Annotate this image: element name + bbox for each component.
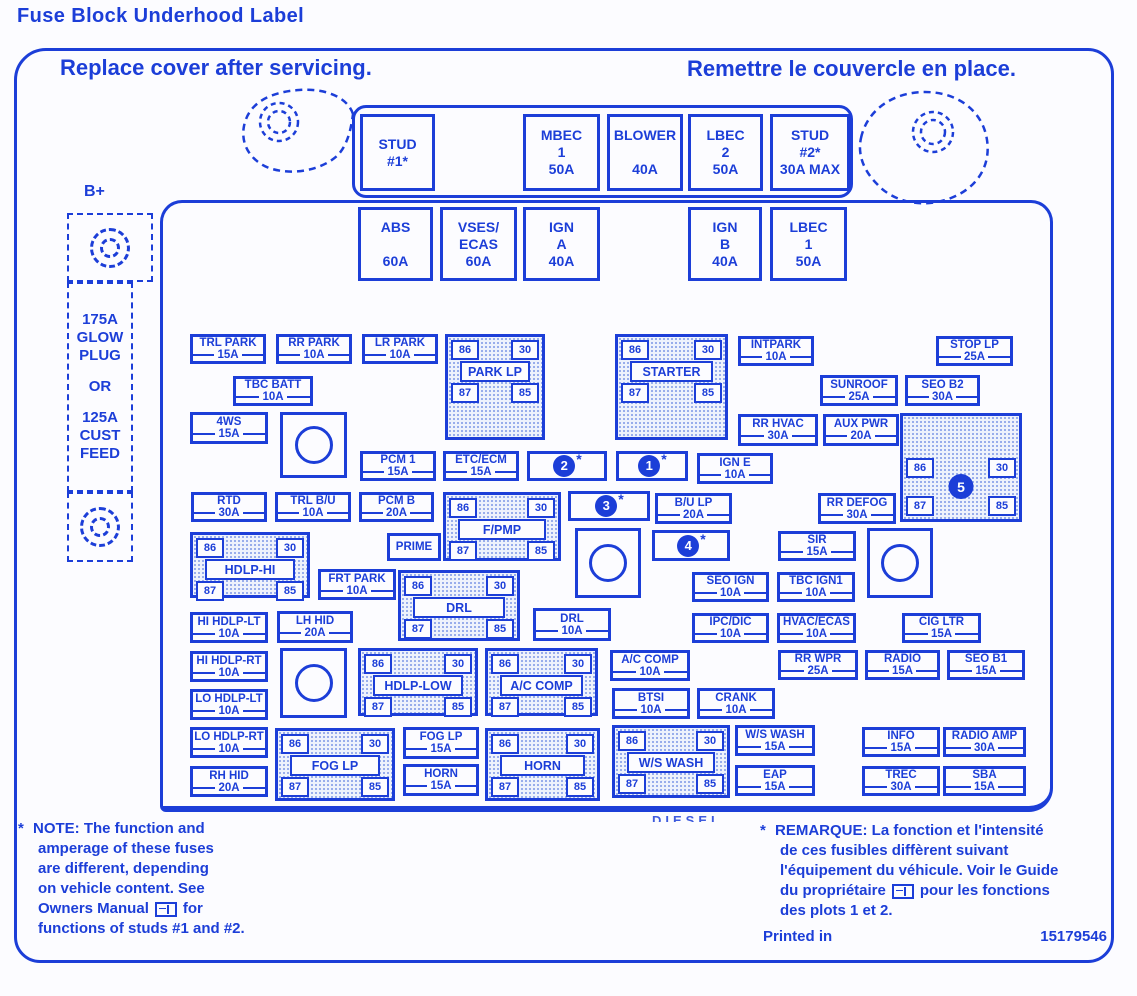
fuse-lo-hdlp-lt: LO HDLP-LT10A	[190, 689, 268, 720]
fuse-hvac-ecas: HVAC/ECAS10A	[777, 613, 856, 643]
fuse-amperage: 10A	[215, 743, 242, 755]
b-plus-stud-top	[67, 213, 153, 282]
fuse-name: RR DEFOG	[825, 497, 890, 509]
fuse-amperage: 10A	[717, 587, 744, 599]
fuse-amperage: 15A	[427, 743, 454, 755]
relay-socket	[280, 648, 347, 718]
fuse-trl-b-u: TRL B/U10A	[275, 492, 351, 522]
fuse-amperage: 15A	[761, 781, 788, 793]
fuse-amp-row: 15A	[905, 628, 978, 640]
fuse-name: EAP	[761, 769, 789, 781]
maxi-fuse-lbec-2: LBEC250A	[688, 114, 763, 191]
note-line: de ces fusibles diffèrent suivant	[760, 841, 1110, 861]
fuse-amp-row: 10A	[193, 705, 265, 717]
fuse-amp-row: 15A	[406, 780, 476, 792]
fuse-name: TREC	[883, 769, 918, 781]
bolt-hole-icon	[921, 120, 945, 144]
fuse-rtd: RTD30A	[191, 492, 267, 522]
relay-fog-lp: 86308785FOG LP	[275, 728, 395, 801]
fuse-pcm-b: PCM B20A	[359, 492, 434, 522]
relay-horn: 86308785HORN	[485, 728, 600, 801]
fuse-name: SEO B2	[919, 379, 965, 391]
relay-terminal-86: 86	[196, 538, 224, 558]
fuse-name: INTPARK	[749, 339, 803, 351]
fuse-amperage: 10A	[722, 704, 749, 716]
relay-terminal-85: 85	[486, 619, 514, 639]
fuse-number-badge: 3	[595, 495, 617, 517]
asterisk: *	[700, 533, 705, 545]
note-text: NOTE: The function and	[33, 820, 205, 837]
relay-terminal-85: 85	[988, 496, 1016, 516]
bolt-icon	[90, 228, 130, 268]
bolt-hole-icon	[913, 112, 953, 152]
relay-terminal-30: 30	[988, 458, 1016, 478]
fuse-amperage: 10A	[215, 667, 242, 679]
fuse-amperage: 15A	[384, 466, 411, 478]
note-line: functions of studs #1 and #2.	[18, 919, 268, 939]
fuse-tbc-batt: TBC BATT10A	[233, 376, 313, 406]
fuse-2-star: 2*	[527, 451, 607, 481]
relay-terminal-87: 87	[449, 541, 477, 561]
note-line: amperage of these fuses	[18, 839, 268, 859]
maxi-fuse-line: 50A	[713, 161, 739, 178]
fuse-amp-row: 10A	[236, 391, 310, 403]
relay-w-s-wash: 86308785W/S WASH	[612, 725, 730, 798]
fuse-amp-row: 30A	[741, 430, 815, 442]
fuse-amp-row: 10A	[695, 628, 766, 640]
maxi-fuse-line: 40A	[632, 161, 658, 178]
fuse-name: RH HID	[207, 770, 251, 782]
fuse-amp-row: 10A	[700, 469, 770, 481]
fuse-name: 4WS	[215, 416, 244, 428]
relay-terminal-30: 30	[696, 731, 724, 751]
relay-name: HDLP-LOW	[373, 675, 463, 696]
fuse-name: RR PARK	[286, 337, 342, 349]
fuse-amperage: 15A	[889, 665, 916, 677]
note-text: REMARQUE: La fonction et l'intensité	[775, 822, 1044, 839]
bolt-hole-icon	[268, 111, 290, 133]
fuse-name: SUNROOF	[828, 379, 890, 391]
fuse-amperage: 20A	[383, 507, 410, 519]
fuse-name: PCM B	[376, 495, 417, 507]
note-line: des plots 1 et 2.	[760, 901, 1110, 921]
fuse-amp-row: 15A	[950, 665, 1022, 677]
maxi-fuse-stud-2: STUD#2*30A MAX	[770, 114, 850, 191]
fuse-pcm-1: PCM 115A	[360, 451, 436, 481]
relay-name: HDLP-HI	[205, 559, 295, 580]
fuse-seo-ign: SEO IGN10A	[692, 572, 769, 602]
maxi-fuse-mbec-1: MBEC150A	[523, 114, 600, 191]
maxi-fuse-line: IGN	[549, 219, 574, 236]
fuse-name: B/U LP	[673, 497, 715, 509]
relay-terminal-87: 87	[281, 777, 309, 797]
maxi-fuse-ign-a: IGNA40A	[523, 207, 600, 281]
fuse-eap: EAP15A	[735, 765, 815, 796]
fuse-amp-row: 30A	[908, 391, 977, 403]
replace-cover-text-fr: Remettre le couvercle en place.	[687, 56, 1016, 82]
fuse-amp-row: 15A	[446, 466, 516, 478]
maxi-fuse-line: 2	[722, 144, 730, 161]
relay-socket	[280, 412, 347, 478]
fuse-amperage: 10A	[299, 507, 326, 519]
maxi-fuse-line: IGN	[713, 219, 738, 236]
fuse-block-underhood-label-page: Fuse Block Underhood Label Replace cover…	[0, 0, 1137, 996]
fuse-name: SBA	[970, 769, 998, 781]
fuse-name: SEO B1	[963, 653, 1009, 665]
maxi-fuse-line: VSES/	[458, 219, 499, 236]
fuse-amperage: 10A	[637, 704, 664, 716]
fuse-amperage: 15A	[215, 428, 242, 440]
relay-terminal-87: 87	[364, 697, 392, 717]
note-line: l'équipement du véhicule. Voir le Guide	[760, 861, 1110, 881]
relay-terminal-30: 30	[511, 340, 539, 360]
maxi-fuse-line: 1	[558, 144, 566, 161]
printed-in-text: Printed in	[763, 928, 832, 945]
fuse-amp-row: 15A	[363, 466, 433, 478]
relay-socket	[867, 528, 933, 598]
relay-name: FOG LP	[290, 755, 380, 776]
fuse-amperage: 25A	[845, 391, 872, 403]
relay-terminal-30: 30	[527, 498, 555, 518]
fuse-rh-hid: RH HID20A	[190, 766, 268, 797]
fuse-amp-row: 30A	[821, 509, 893, 521]
glow-line: PLUG	[79, 347, 121, 365]
fuse-name: TBC BATT	[243, 379, 304, 391]
note-text: pour les fonctions	[920, 881, 1050, 901]
fuse-w-s-wash: W/S WASH15A	[735, 725, 815, 756]
relay-terminal-86: 86	[449, 498, 477, 518]
fuse-amperage: 20A	[680, 509, 707, 521]
fuse-name: IGN E	[717, 457, 752, 469]
glow-line: CUST	[80, 427, 121, 445]
fuse-radio-amp: RADIO AMP30A	[943, 727, 1026, 757]
fuse-lo-hdlp-rt: LO HDLP-RT10A	[190, 727, 268, 758]
maxi-fuse-vses-ecas: VSES/ECAS60A	[440, 207, 517, 281]
fuse-amp-row: 25A	[781, 665, 855, 677]
fuse-amperage: 15A	[803, 546, 830, 558]
relay-name: F/PMP	[458, 519, 546, 540]
fuse-hi-hdlp-rt: HI HDLP-RT10A	[190, 651, 268, 682]
socket-circle-icon	[589, 544, 627, 582]
fuse-amp-row: 30A	[194, 507, 264, 519]
fuse-amperage: 15A	[928, 628, 955, 640]
glow-line: FEED	[80, 445, 120, 463]
relay-5: 863087855	[900, 413, 1022, 522]
fuse-seo-b1: SEO B115A	[947, 650, 1025, 680]
fuse-name: RR HVAC	[750, 418, 806, 430]
fuse-name: CIG LTR	[917, 616, 966, 628]
fuse-1-star: 1*	[616, 451, 688, 481]
note-line: du propriétaire pour les fonctions	[760, 881, 1110, 901]
relay-terminal-87: 87	[491, 777, 519, 797]
relay-terminal-87: 87	[621, 383, 649, 403]
note-line: *NOTE: The function and	[18, 819, 268, 839]
relay-terminal-30: 30	[444, 654, 472, 674]
fuse-amperage: 15A	[972, 665, 999, 677]
fuse-number-badge: 2	[553, 455, 575, 477]
fuse-rr-wpr: RR WPR25A	[778, 650, 858, 680]
fuse-amp-row: 20A	[193, 782, 265, 794]
fuse-name: TRL B/U	[288, 495, 337, 507]
fuse-amperage: 10A	[636, 666, 663, 678]
fuse-radio: RADIO15A	[865, 650, 940, 680]
fuse-amperage: 10A	[558, 625, 585, 637]
note-english: *NOTE: The function and amperage of thes…	[18, 819, 268, 939]
fuse-sba: SBA15A	[943, 766, 1026, 796]
relay-terminal-85: 85	[444, 697, 472, 717]
fuse-name: W/S WASH	[743, 729, 806, 741]
relay-terminal-85: 85	[511, 383, 539, 403]
asterisk: *	[618, 493, 623, 505]
relay-terminal-86: 86	[451, 340, 479, 360]
fuse-amperage: 15A	[467, 466, 494, 478]
maxi-fuse-line: #2*	[799, 144, 820, 161]
fuse-amp-row: 15A	[946, 781, 1023, 793]
relay-drl: 86308785DRL	[398, 570, 520, 641]
fuse-intpark: INTPARK10A	[738, 336, 814, 366]
fuse-tbc-ign1: TBC IGN110A	[777, 572, 855, 602]
fuse-amperage: 10A	[259, 391, 286, 403]
fuse-fog-lp: FOG LP15A	[403, 727, 479, 759]
replace-cover-text-en: Replace cover after servicing.	[60, 55, 372, 81]
maxi-fuse-line: LBEC	[789, 219, 827, 236]
maxi-fuse-blower: BLOWER40A	[607, 114, 683, 191]
fuse-amperage: 10A	[721, 469, 748, 481]
fuse-seo-b2: SEO B230A	[905, 375, 980, 406]
fuse-name: FOG LP	[418, 731, 465, 743]
fuse-amperage: 10A	[386, 349, 413, 361]
maxi-fuse-line: MBEC	[541, 127, 582, 144]
relay-terminal-85: 85	[696, 774, 724, 794]
relay-terminal-30: 30	[276, 538, 304, 558]
maxi-fuse-line: 30A MAX	[780, 161, 840, 178]
relay-park-lp: 86308785PARK LP	[445, 334, 545, 440]
socket-circle-icon	[295, 664, 333, 702]
fuse-name: AUX PWR	[832, 418, 890, 430]
fuse-sunroof: SUNROOF25A	[820, 375, 898, 406]
fuse-name: LH HID	[294, 615, 336, 627]
fuse-info: INFO15A	[862, 727, 940, 757]
relay-terminal-85: 85	[564, 697, 592, 717]
fuse-amp-row: 20A	[362, 507, 431, 519]
fuse-amperage: 30A	[215, 507, 242, 519]
fuse-name: ETC/ECM	[453, 454, 509, 466]
fuse-sir: SIR15A	[778, 531, 856, 561]
fuse-amp-row: 15A	[738, 781, 812, 793]
fuse-name: BTSI	[636, 692, 666, 704]
relay-terminal-87: 87	[491, 697, 519, 717]
fuse-stop-lp: STOP LP25A	[936, 336, 1013, 366]
fuse-amp-row: 25A	[939, 351, 1010, 363]
maxi-fuse-line: 50A	[549, 161, 575, 178]
fuse-amp-row: 10A	[193, 628, 265, 640]
socket-circle-icon	[881, 544, 919, 582]
relay-terminal-86: 86	[491, 734, 519, 754]
relay-a-c-comp: 86308785A/C COMP	[485, 648, 598, 716]
fuse-name: TRL PARK	[197, 337, 258, 349]
fuse-name: RTD	[215, 495, 243, 507]
note-text: Owners Manual	[38, 899, 149, 919]
fuse-amp-row: 10A	[193, 667, 265, 679]
fuse-ipc-dic: IPC/DIC10A	[692, 613, 769, 643]
fuse-name: INFO	[885, 730, 916, 742]
fuse-name: HORN	[422, 768, 460, 780]
partial-diesel-text: DIESEL	[652, 814, 772, 822]
fuse-crank: CRANK10A	[697, 688, 775, 719]
page-title: Fuse Block Underhood Label	[17, 5, 304, 28]
fuse-btsi: BTSI10A	[612, 688, 690, 719]
fuse-amp-row: 10A	[193, 743, 265, 755]
guide-book-icon	[892, 884, 914, 899]
relay-name: HORN	[500, 755, 585, 776]
relay-terminal-30: 30	[486, 576, 514, 596]
glow-line: 125A	[82, 409, 118, 427]
relay-terminal-30: 30	[564, 654, 592, 674]
glow-line: OR	[89, 378, 112, 396]
fuse-rr-defog: RR DEFOG30A	[818, 493, 896, 524]
fuse-amperage: 15A	[971, 781, 998, 793]
fuse-aux-pwr: AUX PWR20A	[823, 414, 899, 446]
fuse-hi-hdlp-lt: HI HDLP-LT10A	[190, 612, 268, 643]
bolt-icon	[80, 507, 120, 547]
fuse-amp-row: 25A	[823, 391, 895, 403]
socket-circle-icon	[295, 426, 333, 464]
fuse-etc-ecm: ETC/ECM15A	[443, 451, 519, 481]
fuse-amp-row: 15A	[868, 665, 937, 677]
fuse-name: SIR	[805, 534, 828, 546]
fuse-name: PCM 1	[378, 454, 417, 466]
fuse-amperage: 10A	[215, 628, 242, 640]
relay-terminal-86: 86	[618, 731, 646, 751]
fuse-ign-e: IGN E10A	[697, 453, 773, 484]
maxi-fuse-line: 60A	[383, 253, 409, 270]
fuse-name: A/C COMP	[619, 654, 681, 666]
fuse-amp-row: 20A	[658, 509, 729, 521]
owners-manual-book-icon	[155, 902, 177, 917]
fuse-amp-row: 30A	[865, 781, 937, 793]
fuse-name: LR PARK	[373, 337, 427, 349]
asterisk: *	[661, 453, 666, 465]
relay-terminal-86: 86	[906, 458, 934, 478]
fuse-amp-row: 30A	[946, 742, 1023, 754]
fuse-name: SEO IGN	[705, 575, 757, 587]
relay-terminal-86: 86	[281, 734, 309, 754]
fuse-amp-row: 15A	[193, 349, 263, 361]
asterisk: *	[576, 453, 581, 465]
maxi-fuse-line: 40A	[712, 253, 738, 270]
relay-number-badge: 5	[949, 474, 974, 499]
partial-label: DIESEL	[652, 814, 723, 822]
fuse-drl: DRL10A	[533, 608, 611, 641]
fuse-amperage: 30A	[887, 781, 914, 793]
fuse-amp-row: 15A	[865, 742, 937, 754]
fuse-4-star: 4*	[652, 530, 730, 561]
fuse-amp-row: 10A	[321, 585, 393, 597]
maxi-fuse-line: 40A	[549, 253, 575, 270]
fuse-amp-row: 10A	[780, 587, 852, 599]
relay-terminal-30: 30	[694, 340, 722, 360]
fuse-number-badge: 1	[638, 455, 660, 477]
fuse-amp-row: 15A	[193, 428, 265, 440]
relay-terminal-85: 85	[361, 777, 389, 797]
fuse-amperage: 10A	[762, 351, 789, 363]
relay-terminal-87: 87	[404, 619, 432, 639]
note-french: *REMARQUE: La fonction et l'intensité de…	[760, 821, 1110, 921]
fuse-amp-row: 20A	[280, 627, 350, 639]
fuse-lh-hid: LH HID20A	[277, 611, 353, 643]
relay-terminal-85: 85	[527, 541, 555, 561]
fuse-amperage: 15A	[761, 741, 788, 753]
fuse-amperage: 10A	[343, 585, 370, 597]
fuse-rr-park: RR PARK10A	[276, 334, 352, 364]
mounting-ear-right	[853, 86, 998, 212]
note-line: Owners Manual for	[18, 899, 268, 919]
relay-terminal-87: 87	[196, 581, 224, 601]
fuse-amperage: 20A	[215, 782, 242, 794]
fuse-name: RR WPR	[793, 653, 844, 665]
fuse-name: CRANK	[713, 692, 759, 704]
fuse-amp-row: 10A	[536, 625, 608, 637]
fuse-name: IPC/DIC	[707, 616, 753, 628]
fuse-lr-park: LR PARK10A	[362, 334, 438, 364]
note-text: du propriétaire	[780, 881, 886, 901]
note-line: on vehicle content. See	[18, 879, 268, 899]
note-line: are different, depending	[18, 859, 268, 879]
glow-line: GLOW	[77, 329, 124, 347]
fuse-trec: TREC30A	[862, 766, 940, 796]
fuse-name: HVAC/ECAS	[781, 616, 852, 628]
fuse-amp-row: 20A	[826, 430, 896, 442]
fuse-number-badge: 4	[677, 535, 699, 557]
maxi-fuse-abs: ABS60A	[358, 207, 433, 281]
maxi-fuse-line: LBEC	[706, 127, 744, 144]
relay-terminal-85: 85	[694, 383, 722, 403]
fuse-name: LO HDLP-LT	[193, 693, 265, 705]
fuse-trl-park: TRL PARK15A	[190, 334, 266, 364]
fuse-amperage: 30A	[843, 509, 870, 521]
relay-name: A/C COMP	[500, 675, 583, 696]
maxi-fuse-line: 60A	[466, 253, 492, 270]
fuse-amp-row: 15A	[406, 743, 476, 755]
part-number: 15179546	[1013, 928, 1107, 945]
fuse-amp-row: 10A	[613, 666, 687, 678]
fuse-amp-row: 10A	[278, 507, 348, 519]
fuse-cig-ltr: CIG LTR15A	[902, 613, 981, 643]
maxi-fuse-line: STUD	[791, 127, 829, 144]
relay-name: STARTER	[630, 361, 713, 382]
fuse-name: HI HDLP-LT	[195, 616, 262, 628]
fuse-name: HI HDLP-RT	[194, 655, 263, 667]
asterisk: *	[18, 819, 33, 839]
fuse-frt-park: FRT PARK10A	[318, 569, 396, 600]
relay-hdlp-hi: 86308785HDLP-HI	[190, 532, 310, 598]
fuse-name: LO HDLP-RT	[192, 731, 266, 743]
b-plus-label: B+	[84, 183, 105, 201]
fuse-amperage: 25A	[961, 351, 988, 363]
fuse-4ws: 4WS15A	[190, 412, 268, 444]
fuse-amperage: 10A	[803, 628, 830, 640]
fuse-amperage: 30A	[971, 742, 998, 754]
relay-socket	[575, 528, 641, 598]
maxi-fuse-line: 1	[805, 236, 813, 253]
relay-starter: 86308785STARTER	[615, 334, 728, 440]
glow-line: 175A	[82, 311, 118, 329]
maxi-fuse-ign-b: IGNB40A	[688, 207, 762, 281]
fuse-rr-hvac: RR HVAC30A	[738, 414, 818, 446]
relay-terminal-87: 87	[906, 496, 934, 516]
glow-plug-cust-feed-box: 175A GLOW PLUG OR 125A CUST FEED	[67, 282, 133, 492]
fuse-amperage: 15A	[427, 780, 454, 792]
